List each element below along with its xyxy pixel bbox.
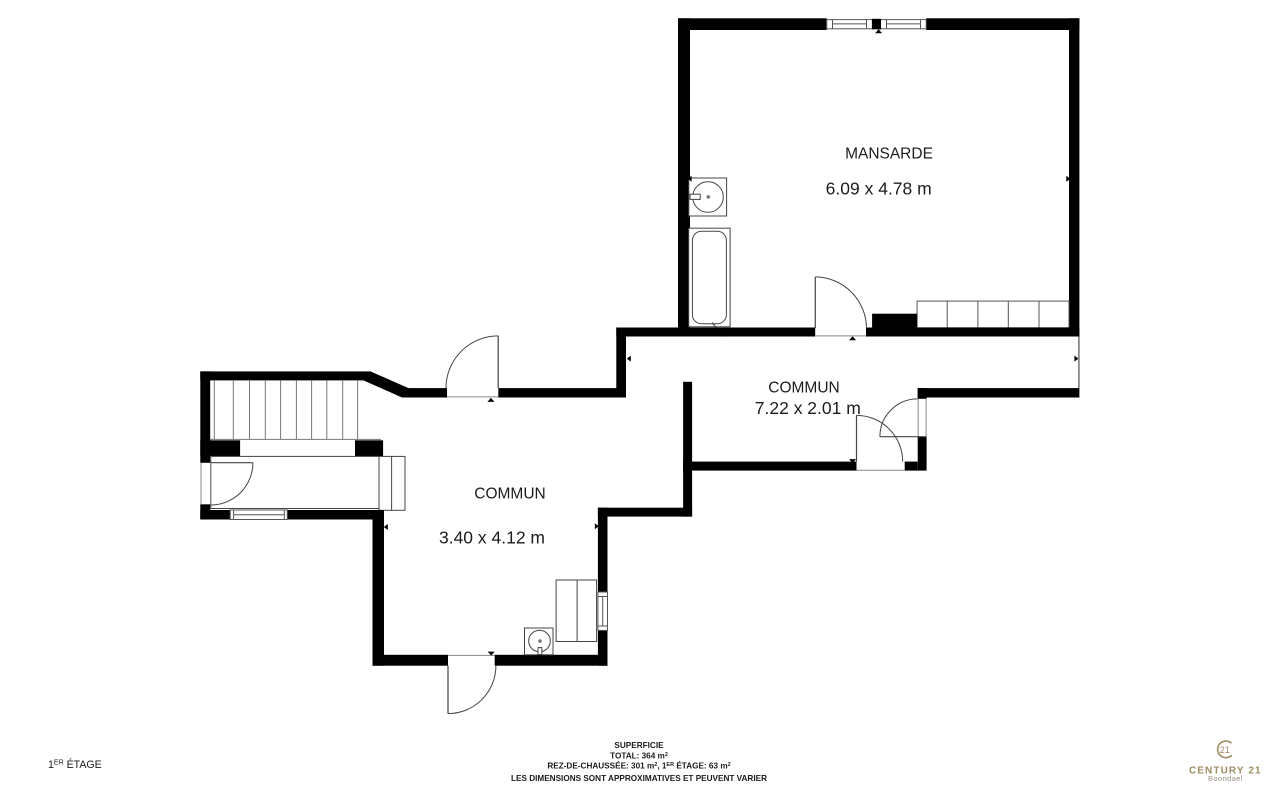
svg-text:TOTAL: 364 m2: TOTAL: 364 m2 (610, 751, 668, 760)
svg-text:REZ-DE-CHAUSSÉE: 301 m2, 1ER É: REZ-DE-CHAUSSÉE: 301 m2, 1ER ÉTAGE: 63 m… (547, 761, 730, 771)
svg-text:SUPERFICIE: SUPERFICIE (614, 741, 664, 750)
svg-text:COMMUN: COMMUN (474, 486, 545, 503)
svg-text:MANSARDE: MANSARDE (845, 146, 933, 163)
svg-text:21: 21 (1220, 745, 1231, 756)
svg-text:COMMUN: COMMUN (768, 380, 839, 397)
svg-text:3.40 x 4.12 m: 3.40 x 4.12 m (439, 528, 545, 548)
svg-text:6.09 x 4.78 m: 6.09 x 4.78 m (826, 179, 932, 199)
svg-text:Boondael: Boondael (1208, 774, 1243, 783)
svg-text:7.22 x 2.01 m: 7.22 x 2.01 m (755, 398, 861, 418)
svg-text:LES DIMENSIONS SONT APPROXIMAT: LES DIMENSIONS SONT APPROXIMATIVES ET PE… (511, 774, 767, 783)
